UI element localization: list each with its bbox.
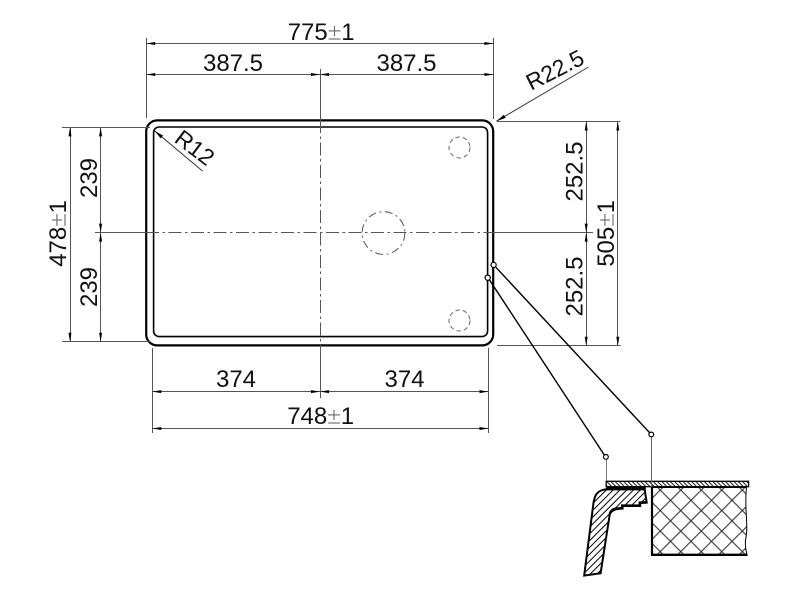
- svg-text:252.5: 252.5: [562, 256, 589, 316]
- svg-text:239: 239: [76, 158, 103, 198]
- svg-text:1: 1: [341, 403, 354, 430]
- svg-text:387.5: 387.5: [203, 50, 263, 77]
- svg-text:374: 374: [384, 366, 424, 393]
- svg-text:478: 478: [45, 227, 72, 267]
- svg-text:374: 374: [216, 366, 256, 393]
- svg-text:775: 775: [288, 19, 328, 46]
- svg-text:1: 1: [593, 200, 620, 213]
- svg-text:748: 748: [287, 403, 327, 430]
- svg-text:239: 239: [76, 267, 103, 307]
- svg-text:1: 1: [45, 200, 72, 213]
- svg-text:505: 505: [593, 227, 620, 267]
- svg-text:1: 1: [341, 19, 354, 46]
- svg-text:252.5: 252.5: [562, 141, 589, 201]
- svg-text:387.5: 387.5: [376, 50, 436, 77]
